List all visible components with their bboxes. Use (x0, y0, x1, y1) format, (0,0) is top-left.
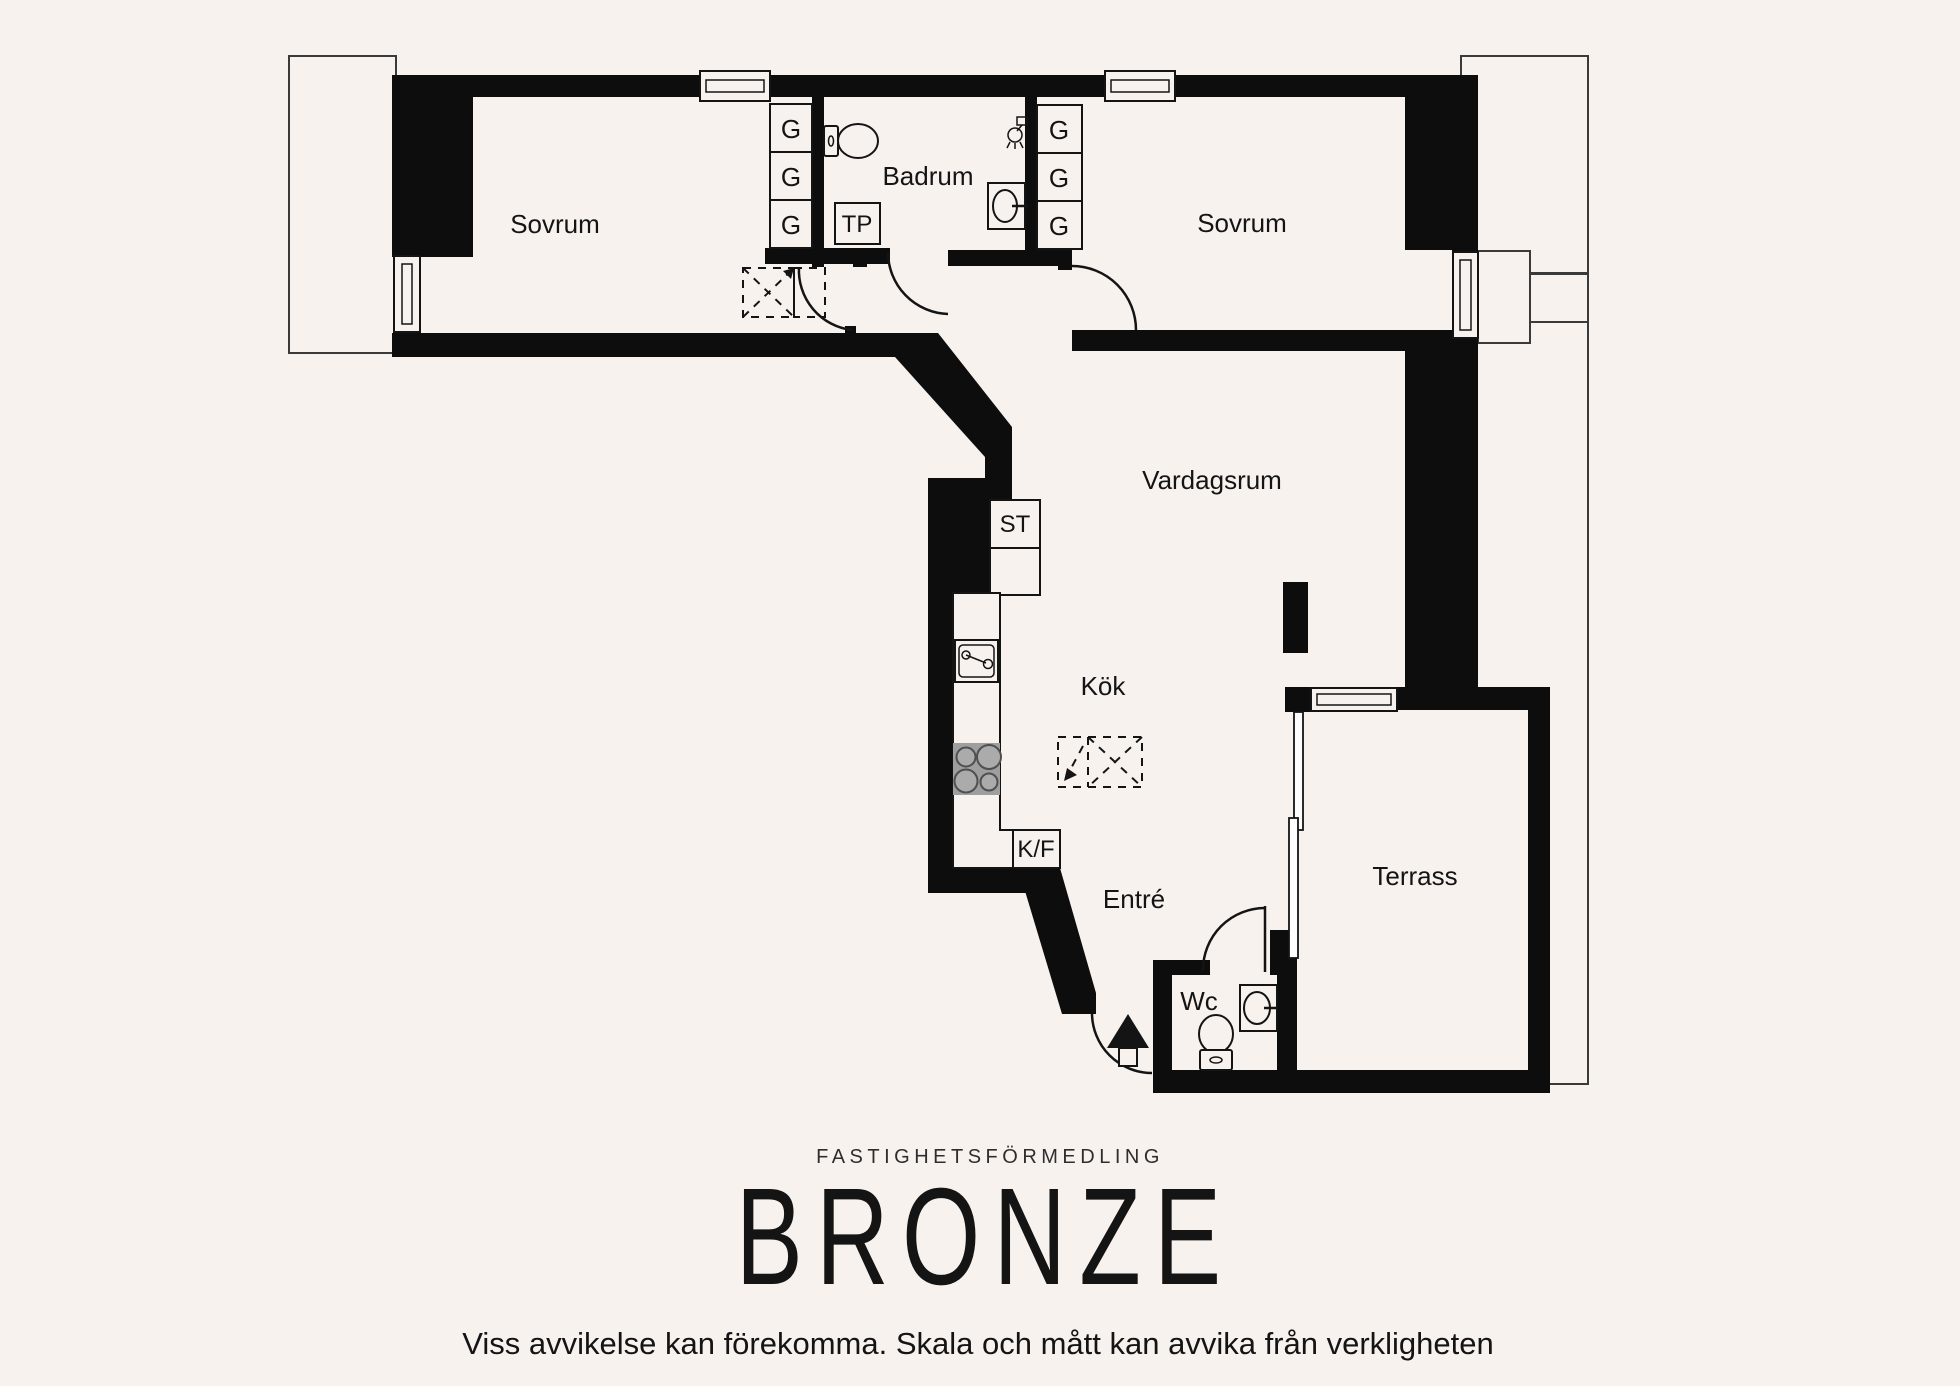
balcony-outline-left (289, 56, 396, 353)
room-label-bedroom-left: Sovrum (510, 209, 600, 239)
room-label-bedroom-right: Sovrum (1197, 208, 1287, 238)
site-boundary-line (1550, 322, 1588, 1084)
wall (1153, 960, 1172, 1082)
wall (1072, 330, 1405, 351)
dashed-kitchen-unit-icon (1058, 737, 1142, 787)
wall (1058, 250, 1072, 270)
wall (948, 250, 1072, 266)
wall (853, 260, 867, 267)
wardrobe-label: G (781, 162, 801, 192)
door-arc-icon (1203, 908, 1265, 970)
doors (799, 252, 1265, 1073)
wall (1277, 962, 1297, 1082)
toilet-icon (1199, 1015, 1233, 1070)
room-label-terrace: Terrass (1372, 861, 1457, 891)
sink-icon (1240, 985, 1278, 1031)
room-label-wc: Wc (1180, 986, 1218, 1016)
wardrobe-label: G (1049, 115, 1069, 145)
juliet-balcony-outline (1530, 273, 1588, 322)
wall (765, 248, 890, 264)
wall (392, 333, 915, 357)
wall (1528, 705, 1550, 1093)
wall (928, 478, 992, 595)
wall-diagonal (895, 333, 1012, 503)
glass-door-pane (1289, 818, 1298, 958)
fridge-freezer-label: K/F (1017, 836, 1054, 863)
wall (812, 97, 824, 267)
cleaning-cabinet-label: ST (1000, 511, 1031, 538)
stove-icon (953, 743, 1001, 795)
wall (392, 75, 473, 257)
kitchen-sink-icon (955, 640, 998, 682)
wardrobe-label: G (1049, 211, 1069, 241)
room-label-entry: Entré (1103, 884, 1165, 914)
agency-logo: BRONZE (736, 1168, 1235, 1306)
window-icon (1453, 252, 1478, 338)
wall (928, 593, 953, 872)
sink-icon (988, 183, 1028, 229)
wardrobe-label: G (781, 114, 801, 144)
window-icon (394, 256, 420, 332)
kitchen-counter (953, 593, 1060, 868)
wall (1153, 1070, 1550, 1093)
door-arc-icon (1072, 266, 1136, 330)
balcony-outline-top-right (1461, 56, 1588, 274)
toilet-paper-label: TP (842, 211, 873, 238)
window-icon (1311, 688, 1397, 711)
door-arc-icon (888, 252, 948, 314)
disclaimer-text: Viss avvikelse kan förekomma. Skala och … (462, 1326, 1494, 1362)
wall (392, 75, 1478, 97)
window-bay-outline (1478, 251, 1530, 343)
floorplan-page: Sovrum Badrum Sovrum Vardagsrum Kök Entr… (0, 0, 1960, 1386)
wall (1405, 330, 1478, 688)
pillar (1283, 582, 1308, 653)
toilet-icon (824, 124, 878, 158)
shower-icon (1007, 117, 1027, 149)
window-icon (700, 71, 770, 101)
window-icon (1105, 71, 1175, 101)
wall-diagonal-entry (1025, 868, 1096, 1014)
cleaning-cabinet (990, 548, 1040, 595)
wall (1285, 687, 1313, 712)
room-label-bathroom: Badrum (882, 161, 973, 191)
wardrobe-label: G (781, 210, 801, 240)
room-label-living-room: Vardagsrum (1142, 465, 1282, 495)
wardrobe-label: G (1049, 163, 1069, 193)
glass-door-pane (1294, 712, 1303, 830)
wall (1395, 687, 1550, 710)
wall (1405, 75, 1478, 250)
room-label-kitchen: Kök (1081, 671, 1127, 701)
